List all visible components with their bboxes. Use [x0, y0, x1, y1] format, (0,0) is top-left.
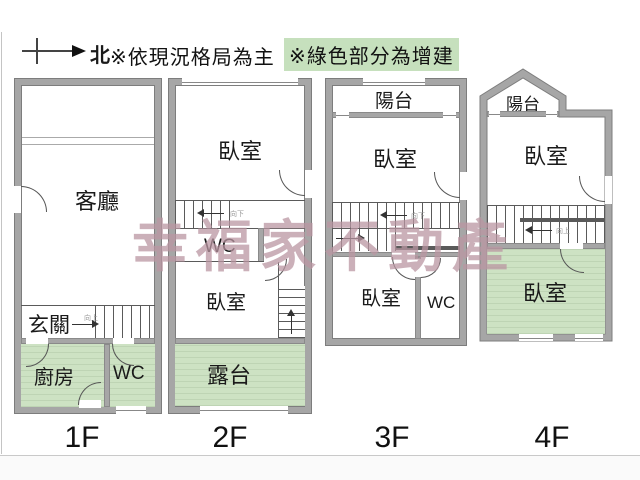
room-label-1f-wc: WC — [113, 363, 145, 385]
floor-label-4f: 4F — [522, 421, 582, 455]
4f-stair-rail — [520, 218, 605, 222]
2f-bedroom-door-gap — [305, 170, 312, 198]
3f-balcony-wall — [332, 112, 460, 118]
room-label-foyer: 玄關 — [28, 309, 70, 339]
1f-partition-line-1 — [22, 137, 154, 138]
scan-edge-left — [1, 32, 2, 454]
room-label-terrace: 露台 — [207, 358, 251, 390]
floorplan-image: 北 ※依現況格局為主 ※綠色部分為增建 客廳 玄關 向上 廚房 WC 臥室 向下… — [0, 0, 640, 480]
room-label-kitchen: 廚房 — [34, 361, 74, 390]
compass: 北 — [20, 36, 120, 66]
1f-partition-line-2 — [22, 144, 154, 145]
north-arrow-icon — [20, 36, 88, 66]
room-label-3f-bedroom-rear: 臥室 — [351, 282, 411, 311]
room-label-2f-bedroom-rear: 臥室 — [196, 286, 256, 315]
1f-entry-door-gap — [14, 186, 21, 213]
compass-north-label: 北 — [90, 39, 110, 68]
4f-rear-window-right — [575, 334, 603, 341]
4f-bedroom-door-gap — [605, 176, 612, 204]
room-label-3f-bedroom-front: 臥室 — [365, 142, 425, 174]
4f-rear-window-left — [519, 334, 553, 341]
4f-balcony-window-left — [489, 111, 500, 117]
3f-bedroom-door-gap — [460, 172, 467, 200]
room-label-3f-balcony: 陽台 — [369, 86, 419, 113]
scan-edge-bottom — [0, 455, 640, 480]
note-layout-disclaimer: ※依現況格局為主 — [110, 41, 275, 70]
2f-rear-window — [200, 406, 288, 414]
4f-stairs-up-label: 向上 — [556, 226, 570, 236]
room-label-2f-bedroom-front: 臥室 — [210, 134, 270, 166]
floor-label-2f: 2F — [200, 421, 260, 455]
1f-stairs — [95, 306, 152, 338]
4f-balcony-window-right — [546, 111, 557, 117]
room-label-4f-bedroom-rear: 臥室 — [515, 276, 575, 308]
room-label-3f-wc: WC — [427, 293, 455, 313]
3f-balcony-window-left — [336, 112, 349, 118]
note-green-addition: ※綠色部分為增建 — [284, 38, 459, 71]
2f-front-window — [182, 78, 298, 85]
2f-stairs-up-arrow — [291, 312, 292, 334]
floor-label-3f: 3F — [362, 421, 422, 455]
1f-stairs-up-arrow — [72, 324, 96, 325]
agency-watermark: 幸福家不動產 — [132, 202, 516, 283]
floor-label-1f: 1F — [52, 421, 112, 455]
room-label-living: 客廳 — [57, 184, 137, 216]
4f-stairs-up-arrow — [528, 230, 552, 231]
1f-rear-window — [116, 406, 146, 414]
3f-balcony-window-right — [443, 112, 456, 118]
room-label-4f-bedroom-front: 臥室 — [516, 139, 576, 171]
3f-balcony-window — [363, 78, 425, 85]
